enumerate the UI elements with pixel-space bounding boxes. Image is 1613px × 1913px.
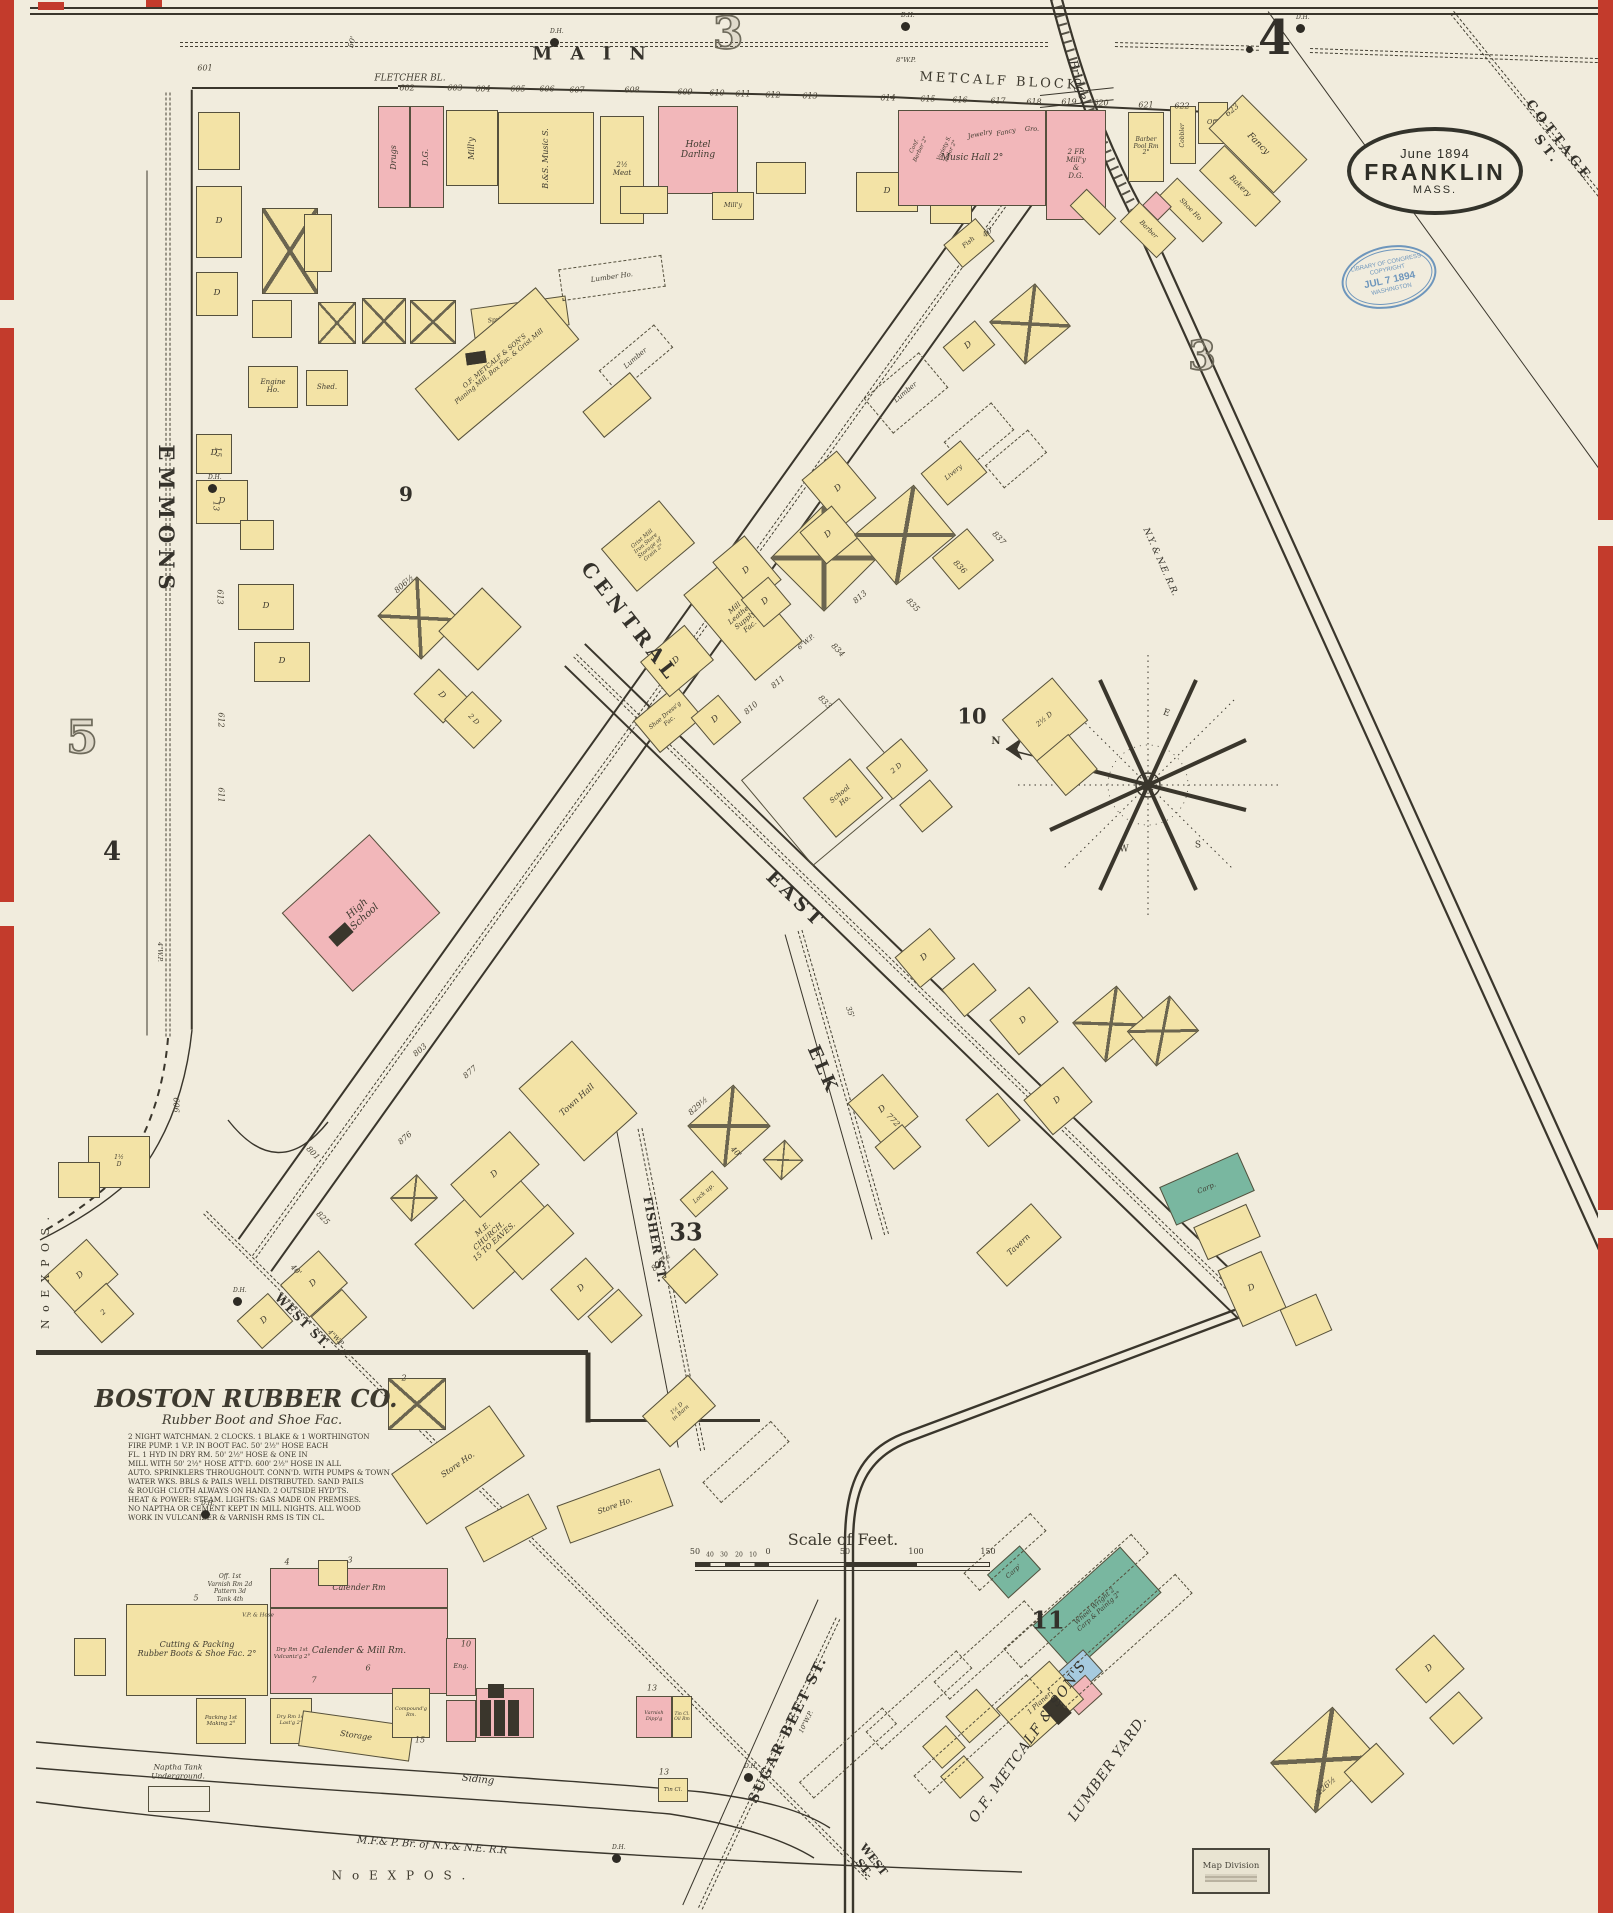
- building-label: Engine Ho.: [261, 379, 286, 395]
- house-number: 612: [217, 712, 226, 727]
- house-number: 622: [1174, 102, 1189, 111]
- hydrant-label: D.H.: [550, 28, 564, 35]
- hydrant-dot: [550, 38, 559, 47]
- building: [508, 1700, 519, 1736]
- map-text-naptha-tank: Naptha Tank Underground.: [151, 1763, 205, 1782]
- building-label: D: [214, 289, 221, 299]
- house-number: 612: [765, 91, 780, 100]
- building-label: D: [576, 1283, 587, 1295]
- building-label: D: [1247, 1283, 1257, 1294]
- house-number: 609: [677, 88, 692, 97]
- hydrant-label: D.H.: [612, 1844, 626, 1851]
- house-number: 3: [347, 1556, 352, 1565]
- sheet-edge-topmark-1: [38, 2, 64, 10]
- building-label: B.&S. Music S.: [542, 128, 551, 189]
- building-label: Compound'g Rm.: [395, 1707, 427, 1718]
- map-text-v-p-hose: V.P. & Hose: [242, 1613, 274, 1620]
- building-label: D: [1052, 1095, 1063, 1107]
- building-d: D: [196, 480, 248, 524]
- building-label: Carp': [1005, 1563, 1023, 1580]
- building-label: 2 D: [890, 762, 904, 776]
- house-number: 615: [920, 95, 935, 104]
- house-number: 603: [447, 84, 462, 93]
- hydrant-dot: [1296, 24, 1305, 33]
- building-label: Lock up.: [692, 1183, 716, 1205]
- scale-tick: 0: [765, 1547, 770, 1557]
- compass-circle: [1145, 782, 1152, 789]
- map-text-boston-rubber-co: BOSTON RUBBER CO.: [94, 1384, 397, 1414]
- railroad-or-curve-line: [1056, 0, 1608, 1238]
- building-varnish: Varnish Dipp'g: [636, 1696, 672, 1738]
- building-label: Hotel Darling: [681, 140, 715, 160]
- building-label: 2½ Meat: [613, 162, 631, 178]
- building-calender-rm: Calender Rm: [270, 1568, 448, 1608]
- building-label: Lumber Ho.: [590, 271, 633, 285]
- scale-tick: 100: [908, 1547, 923, 1557]
- scale-ruler: [695, 1562, 990, 1567]
- building-label: Drugs: [390, 145, 399, 170]
- building-shed: Shed.: [306, 370, 348, 406]
- building: [318, 302, 356, 344]
- building-b-s-music-s: B.&S. Music S.: [498, 112, 594, 204]
- district-number: 11: [1031, 1606, 1064, 1635]
- building-label: Barber Pool Rm 2°: [1133, 137, 1158, 157]
- house-number: 6: [365, 1664, 370, 1673]
- building: [488, 1684, 504, 1698]
- house-number: 13: [212, 501, 221, 511]
- building: [620, 186, 668, 214]
- street-label-emmons: EMMONS: [154, 444, 178, 595]
- district-number: 4: [103, 837, 121, 867]
- house-number: 606: [539, 85, 554, 94]
- building-label: Tin Cl. Oil Rm: [674, 1712, 690, 1722]
- building-d: D: [254, 642, 310, 682]
- building-label: D: [279, 657, 286, 667]
- building: [362, 298, 406, 344]
- house-number: 606: [172, 1097, 181, 1112]
- map-text-8-w-p: 8"W.P.: [896, 56, 916, 64]
- house-number: 614: [880, 94, 895, 103]
- page-number-dot: [1246, 46, 1253, 53]
- scale-tick: 50: [690, 1547, 700, 1557]
- building-label: 2: [100, 1309, 109, 1318]
- page-number-value: 4: [1258, 10, 1291, 66]
- house-number: 617: [990, 97, 1005, 106]
- building-label: Fish: [961, 236, 976, 251]
- building-label: D: [710, 714, 721, 726]
- building-cobbler: Cobbler: [1170, 106, 1196, 164]
- sheet-edge-right: [1598, 0, 1613, 1913]
- sheet-edge-left: [0, 0, 14, 1913]
- house-number: 610: [709, 89, 724, 98]
- district-number: 9: [399, 482, 413, 506]
- sheet-page-number: 4: [1246, 10, 1291, 66]
- building-label: 1½ D: [114, 1155, 124, 1168]
- building: [410, 300, 456, 344]
- building-label: D: [823, 529, 834, 541]
- district-number: 10: [957, 704, 986, 729]
- building-label: D: [1424, 1663, 1435, 1675]
- map-division-label: Map Division: [1203, 1861, 1260, 1871]
- scale-tick: 10: [749, 1551, 757, 1559]
- map-line: [191, 90, 193, 1030]
- title-oval: June 1894 FRANKLIN MASS.: [1347, 127, 1523, 215]
- adjacent-sheet-number: 3: [713, 9, 744, 60]
- building-d-g: D.G.: [410, 106, 444, 208]
- title-city: FRANKLIN: [1364, 161, 1506, 184]
- scale-tick: 20: [735, 1551, 743, 1559]
- house-number: 15: [415, 1736, 425, 1745]
- building: [74, 1638, 106, 1676]
- house-number: 5: [193, 1594, 198, 1603]
- building-label: Fancy: [1245, 131, 1271, 157]
- building: [446, 1700, 476, 1742]
- building-label: Eng.: [453, 1663, 468, 1670]
- house-number: 619: [1061, 98, 1076, 107]
- railroad-or-curve-line: [146, 1030, 192, 1164]
- house-number: 618: [1026, 98, 1041, 107]
- building-label: Carp.: [1196, 1181, 1217, 1196]
- building-label: 2 FR Mill'y & D.G.: [1066, 149, 1086, 180]
- building-label: Cobbler: [1180, 123, 1187, 147]
- house-number: 620: [1093, 99, 1108, 108]
- map-line: [30, 13, 1598, 14]
- building-tin-cl: Tin Cl.: [658, 1778, 688, 1802]
- building-label: Store Ho.: [596, 1496, 633, 1516]
- map-line: [192, 87, 398, 89]
- building-label: Town Hall: [559, 1083, 598, 1119]
- building-label: D: [75, 1270, 86, 1282]
- building-label: D.G.: [423, 148, 432, 165]
- building-label: Shoe Dress'g Fac.: [648, 701, 687, 737]
- building-d: D: [196, 272, 238, 316]
- map-line: [147, 170, 148, 1035]
- house-number: 604: [475, 85, 490, 94]
- hydrant-label: D.H.: [233, 1287, 247, 1294]
- map-text-n-o-e-x-p-o-s: N o E X P O S .: [39, 1215, 53, 1329]
- building: [318, 1560, 348, 1586]
- building-label: Grist Mill Iron Store Storage of Grain 2…: [629, 527, 667, 565]
- hydrant-label: D.H.: [744, 1763, 758, 1770]
- house-number: 605: [510, 85, 525, 94]
- building-label: Barber: [1137, 219, 1158, 240]
- map-text-n-o-e-x-p-o-s: N o E X P O S .: [332, 1869, 469, 1884]
- sanborn-map-sheet: June 1894 FRANKLIN MASS. LIBRARY OF CONG…: [0, 0, 1613, 1913]
- adjacent-sheet-number: 5: [66, 710, 98, 764]
- house-number: 611: [735, 90, 750, 99]
- building-label: Packing 1st Making 2°: [205, 1715, 237, 1727]
- building-mill-y: Mill'y: [446, 110, 498, 186]
- building-label: 1½ D in Barn: [667, 1400, 691, 1423]
- building-label: Store Ho.: [440, 1450, 477, 1480]
- hydrant-dot: [233, 1297, 242, 1306]
- building-hotel: Hotel Darling: [658, 106, 738, 194]
- building: [198, 112, 240, 170]
- house-number: 601: [197, 64, 212, 73]
- railroad-or-curve-line: [36, 1742, 830, 1828]
- building: [240, 520, 274, 550]
- house-number: 4: [284, 1558, 289, 1567]
- map-line: [695, 1570, 990, 1571]
- building-label: Shoe Ho: [1178, 198, 1203, 223]
- building-label: D: [760, 596, 771, 608]
- building: [58, 1162, 100, 1198]
- hydrant-dot: [201, 1510, 210, 1519]
- building-label: D: [263, 602, 270, 612]
- building-label: Shed.: [317, 384, 337, 392]
- building: [304, 214, 332, 272]
- building-d: D: [196, 186, 242, 258]
- building-label: D: [963, 340, 974, 352]
- building-packing-1st: Packing 1st Making 2°: [196, 1698, 246, 1744]
- hydrant-dot: [208, 484, 217, 493]
- building-label: Mill'y: [468, 137, 477, 160]
- map-line: [586, 1352, 591, 1422]
- edge-notch: [1598, 1210, 1613, 1238]
- edge-notch: [0, 902, 14, 926]
- building-label: Livery: [944, 464, 965, 483]
- map-text-n: N: [991, 736, 1000, 749]
- building-compound-g: Compound'g Rm.: [392, 1688, 430, 1738]
- map-text-rubber-boot-and-shoe-fac: Rubber Boot and Shoe Fac.: [162, 1413, 342, 1429]
- building-engine: Engine Ho.: [248, 366, 298, 408]
- house-number: 10: [461, 1640, 471, 1649]
- map-text-2-night-watchman-2-clock: 2 NIGHT WATCHMAN. 2 CLOCKS. 1 BLAKE & 1 …: [128, 1432, 390, 1522]
- building-label: D: [216, 217, 223, 227]
- building-label: D: [741, 565, 752, 577]
- hydrant-label: D.H.: [1296, 14, 1310, 21]
- map-text-w: W: [1119, 844, 1128, 855]
- hydrant-dot: [744, 1773, 753, 1782]
- house-number: 611: [217, 787, 226, 802]
- house-number: 13: [659, 1768, 669, 1777]
- building-label: D: [489, 1169, 500, 1181]
- building-barber: Barber Pool Rm 2°: [1128, 112, 1164, 182]
- map-text-s: S: [1195, 840, 1201, 851]
- map-text-off-1st: Off. 1st Varnish Rm 2d Pattern 3d Tank 4…: [208, 1573, 253, 1603]
- house-number: 621: [1138, 101, 1153, 110]
- street-label-m-a-i-n: M A I N: [532, 45, 652, 66]
- house-number: 613: [216, 589, 225, 604]
- building-label: Cutting & Packing Rubber Boots & Shoe Fa…: [138, 1641, 257, 1659]
- building-label: Bakery: [1228, 174, 1253, 199]
- house-number: 607: [569, 86, 584, 95]
- building: [252, 300, 292, 338]
- railroad-or-curve-line: [1046, 0, 1600, 1252]
- building-tin-cl: Tin Cl. Oil Rm: [672, 1696, 692, 1738]
- scale-tick: 40: [706, 1551, 714, 1559]
- building-label: D: [308, 1278, 319, 1290]
- title-state: MASS.: [1413, 184, 1457, 196]
- sheet-edge-topmark-2: [146, 0, 162, 7]
- building-label: D: [833, 483, 844, 495]
- map-text-gro: Gro.: [1025, 125, 1039, 133]
- house-number: 613: [802, 92, 817, 101]
- edge-notch: [0, 300, 14, 328]
- house-number: 602: [399, 84, 414, 93]
- hydrant-dot: [612, 1854, 621, 1863]
- district-number: 33: [669, 1218, 702, 1247]
- house-number: 616: [952, 96, 967, 105]
- house-number: 15: [214, 447, 223, 457]
- scale-tick: 150: [980, 1547, 995, 1557]
- building-mill-y: Mill'y: [712, 192, 754, 220]
- building-label: D: [884, 187, 891, 197]
- building-label: Lumber: [623, 347, 649, 371]
- map-line: [36, 1350, 588, 1355]
- building-d: D: [238, 584, 294, 630]
- adjacent-sheet-number: 3: [1188, 333, 1216, 380]
- building-label: Varnish Dipp'g: [644, 1711, 663, 1722]
- building-drugs: Drugs: [378, 106, 410, 208]
- building-label: Mill'y: [724, 202, 742, 209]
- map-text-4-w-p: 4"W.P.: [156, 942, 164, 962]
- building: [148, 1786, 210, 1812]
- building-label: D: [435, 690, 447, 702]
- house-number: 2: [401, 1374, 406, 1383]
- edge-notch: [1598, 520, 1613, 546]
- map-division-stamp: Map Division: [1192, 1848, 1270, 1894]
- hydrant-label: D.H.: [201, 1500, 215, 1507]
- building-label: 2½ D: [1035, 711, 1055, 729]
- scale-tick: 50: [840, 1547, 850, 1557]
- hydrant-label: D.H.: [208, 474, 222, 481]
- hydrant-label: D.H.: [901, 12, 915, 19]
- hydrant-dot: [901, 22, 910, 31]
- building-label: Storage: [340, 1729, 373, 1742]
- building-label: Lumber: [893, 381, 919, 405]
- building: [494, 1700, 505, 1736]
- map-division-scribble: [1205, 1874, 1257, 1882]
- map-text-dry-rm-1st: Dry Rm 1st Vulcaniz'g 2°: [274, 1647, 311, 1661]
- house-number: 13: [647, 1684, 657, 1693]
- building-label: D: [1018, 1015, 1029, 1027]
- building-label: 2 D: [466, 713, 480, 727]
- building: [480, 1700, 491, 1736]
- house-number: 608: [624, 86, 639, 95]
- map-line: [30, 7, 1598, 9]
- building-label: Calender & Mill Rm.: [312, 1646, 406, 1656]
- building-label: Tin Cl.: [664, 1787, 682, 1793]
- house-number: 7: [311, 1676, 316, 1685]
- scale-tick: 30: [720, 1551, 728, 1559]
- building-label: D: [259, 1315, 270, 1327]
- building: [756, 162, 806, 194]
- building-label: Tavern: [1006, 1232, 1033, 1257]
- building-label: D: [919, 952, 930, 964]
